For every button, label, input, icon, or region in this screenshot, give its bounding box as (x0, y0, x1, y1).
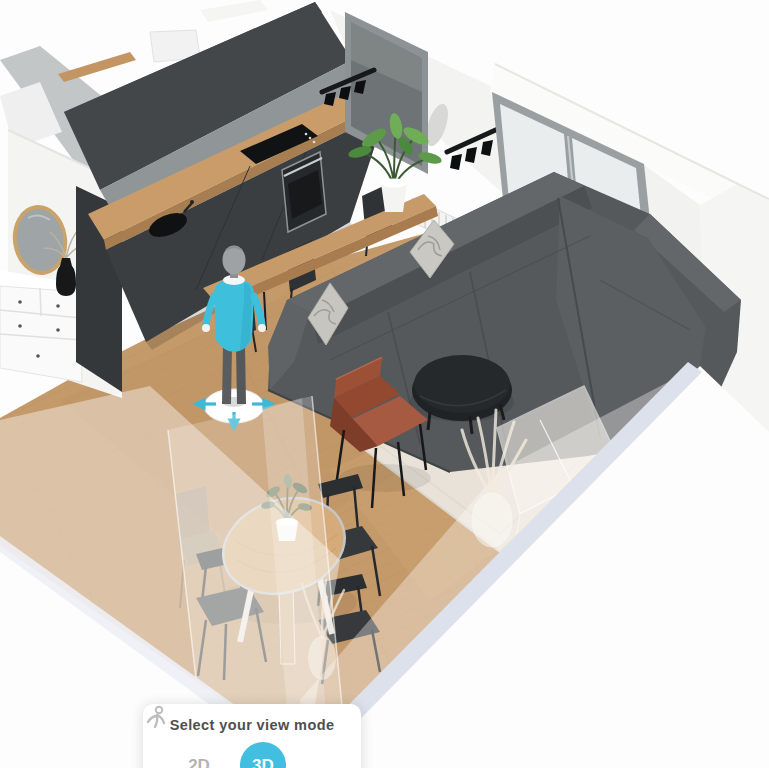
view-mode-title: Select your view mode (170, 717, 335, 733)
scene-3d[interactable] (0, 0, 769, 768)
first-person-view-icon (143, 704, 167, 730)
design-canvas[interactable]: Select your view mode 2D 3D (0, 0, 769, 768)
view-mode-options: 2D 3D (188, 742, 316, 768)
view-mode-2d-button[interactable]: 2D (188, 757, 210, 768)
view-mode-3d-button[interactable]: 3D (240, 742, 286, 768)
view-mode-panel: Select your view mode 2D 3D (143, 704, 361, 768)
